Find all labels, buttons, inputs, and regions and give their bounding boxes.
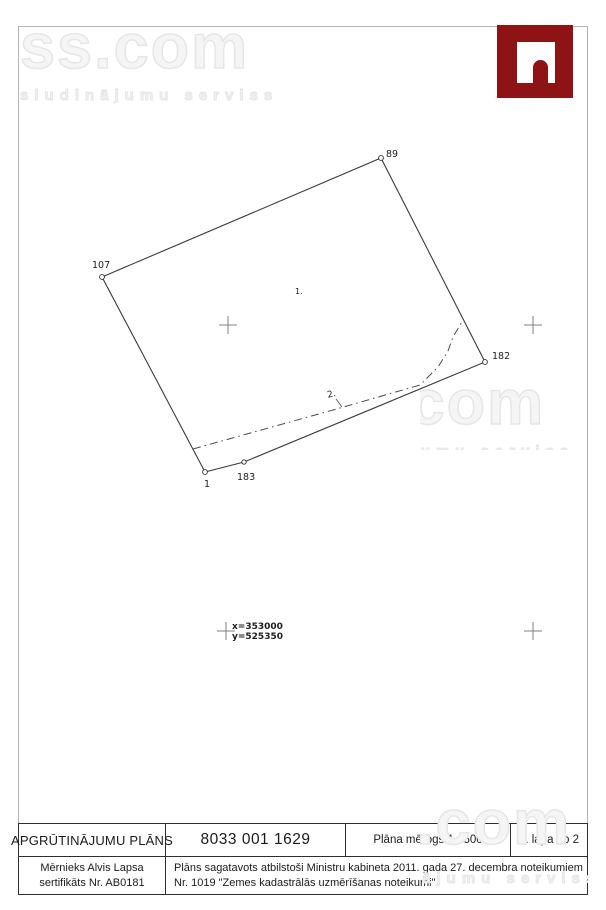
point-marker-89 (379, 156, 384, 161)
scale-label: Plāna mērogs 1 : 500 (373, 834, 482, 846)
survey-plan-drawing: 89 107 1 183 182 1. 2. x=353000 y=525350 (0, 0, 606, 910)
page-number-cell: 2. lapa no 2 (511, 824, 587, 856)
regulation-cell: Plāns sagatavots atbilstoši Ministru kab… (166, 857, 587, 894)
document-title: APGRŪTINĀJUMU PLĀNS (11, 833, 173, 848)
surveyor-certificate: sertifikāts Nr. AB0181 (39, 876, 144, 891)
grid-coordinate-x: x=353000 (232, 622, 283, 632)
regulation-line-2: Nr. 1019 "Zemes kadastrālās uzmērīšanas … (174, 876, 436, 891)
cadastre-number-cell: 8033 001 1629 (166, 824, 346, 856)
ss-logo-pillar-icon (533, 60, 548, 83)
point-label-89: 89 (386, 149, 398, 160)
cadastre-number: 8033 001 1629 (201, 831, 311, 849)
title-block-row-2: Mērnieks Alvis Lapsa sertifikāts Nr. AB0… (19, 857, 587, 894)
point-marker-183 (242, 460, 246, 464)
point-marker-182 (483, 360, 488, 365)
point-marker-107 (100, 275, 105, 280)
page-number-label: 2. lapa no 2 (519, 834, 579, 846)
parcel-boundary (102, 158, 485, 472)
ss-logo-arch-icon (517, 42, 555, 83)
encumbrance-label: 2. (326, 389, 336, 401)
grid-cross (219, 316, 237, 334)
point-label-182: 182 (492, 351, 510, 362)
point-label-1: 1 (204, 479, 210, 490)
regulation-line-1: Plāns sagatavots atbilstoši Ministru kab… (174, 861, 583, 876)
grid-coordinate-y: y=525350 (232, 632, 283, 642)
title-block-row-1: APGRŪTINĀJUMU PLĀNS 8033 001 1629 Plāna … (19, 824, 587, 857)
grid-cross (524, 622, 542, 640)
surveyor-cell: Mērnieks Alvis Lapsa sertifikāts Nr. AB0… (19, 857, 166, 894)
parcel-area-label: 1. (295, 287, 303, 296)
point-label-107: 107 (92, 260, 110, 271)
plan-document-page: ss.com sludinājumu serviss ss.com sludin… (0, 0, 606, 910)
title-block-table: APGRŪTINĀJUMU PLĀNS 8033 001 1629 Plāna … (18, 823, 588, 895)
document-title-cell: APGRŪTINĀJUMU PLĀNS (19, 824, 166, 856)
encumbrance-line (193, 322, 462, 449)
point-marker-1 (203, 470, 208, 475)
grid-cross (524, 316, 542, 334)
scale-cell: Plāna mērogs 1 : 500 (346, 824, 511, 856)
ss-logo (497, 25, 573, 98)
point-label-183: 183 (237, 472, 255, 483)
encumbrance-label-leader (336, 399, 342, 407)
surveyor-name: Mērnieks Alvis Lapsa (40, 861, 143, 876)
